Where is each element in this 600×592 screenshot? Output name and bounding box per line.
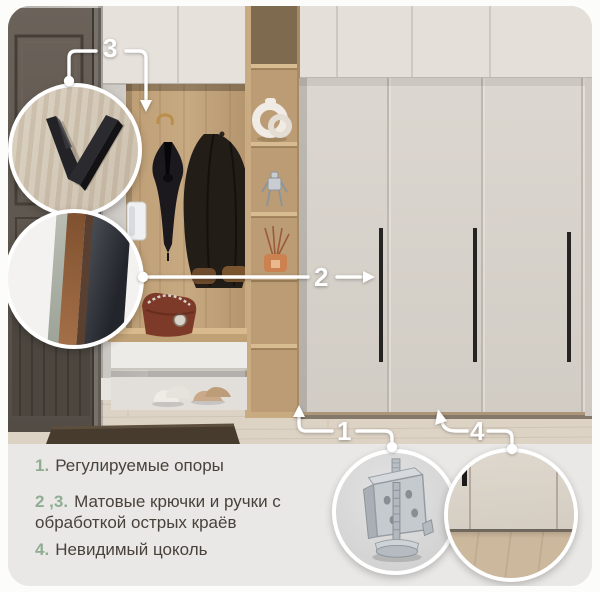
inset-hook-closeup <box>8 83 142 217</box>
feature-text: Матовые крючки и ручки с обработкой остр… <box>35 492 281 532</box>
inset-plinth-closeup <box>444 448 578 582</box>
area-rug <box>46 425 240 444</box>
plinth-handle-tip <box>462 458 467 486</box>
wardrobe <box>299 78 592 419</box>
plinth-door-seam <box>556 452 558 529</box>
open-shelf-column <box>245 6 300 418</box>
plinth-door <box>448 452 574 532</box>
feature-item-1: 1.Регулируемые опоры <box>35 455 327 476</box>
feature-number: 1. <box>35 456 49 475</box>
product-image-card: 3 2 1 4 1.Регулируемые опоры 2 ,3.Матовы… <box>8 6 592 586</box>
plinth-shadow <box>448 529 574 538</box>
feature-item-3: 4.Невидимый цоколь <box>35 539 327 560</box>
coat <box>184 134 250 288</box>
inset-handle-closeup <box>8 209 144 349</box>
feature-item-2: 2 ,3.Матовые крючки и ручки с обработкой… <box>35 491 327 533</box>
handbag <box>142 293 196 337</box>
inset-leveler-closeup <box>332 449 458 575</box>
wardrobe-handle <box>567 232 571 362</box>
upper-cabinets <box>103 6 592 84</box>
matte-hook-icon <box>12 87 138 213</box>
feature-text: Невидимый цоколь <box>55 540 207 559</box>
feature-text: Регулируемые опоры <box>55 456 224 475</box>
plinth-door-seam <box>469 452 471 529</box>
wardrobe-handle <box>473 228 477 362</box>
bench-drawer <box>111 342 247 369</box>
feature-number: 4. <box>35 540 49 559</box>
adjustable-foot-icon <box>336 453 454 571</box>
feature-number: 2 ,3. <box>35 492 68 511</box>
wardrobe-handle <box>379 228 383 362</box>
